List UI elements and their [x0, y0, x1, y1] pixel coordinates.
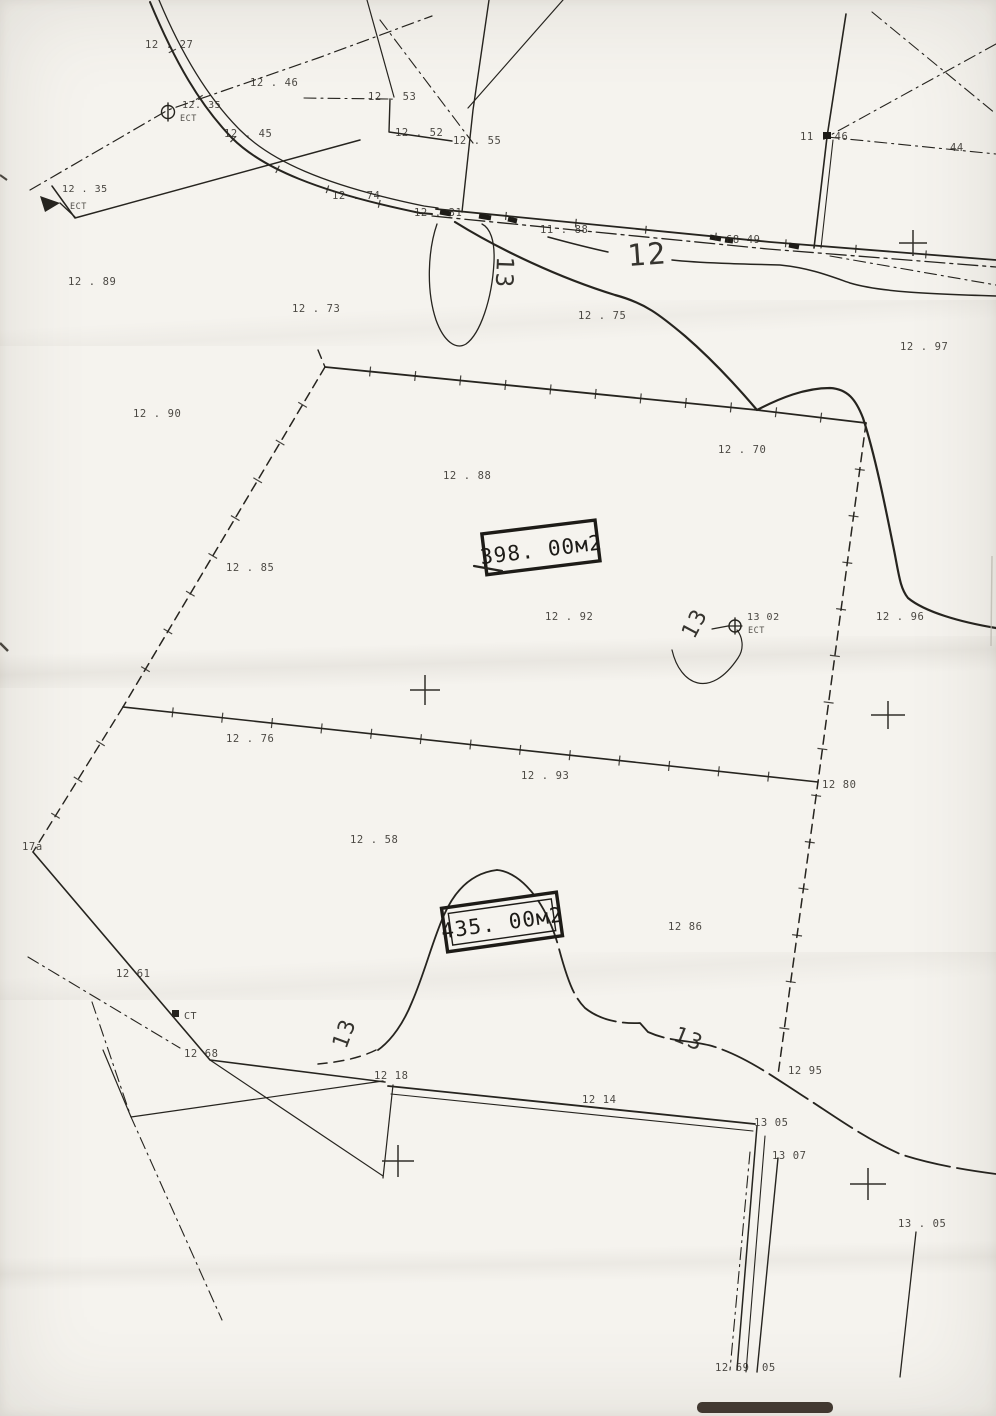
- survey-tick: [222, 713, 223, 723]
- contour-13-lower: [497, 870, 996, 1174]
- survey-tick: [811, 795, 821, 796]
- contour-label: 13: [490, 256, 519, 290]
- contour-13-left-tail: [318, 1050, 376, 1064]
- survey-tick: [779, 1028, 789, 1029]
- survey-tick: [186, 591, 195, 596]
- survey-tick: [817, 748, 827, 749]
- elevation-label: 12 . 75: [578, 310, 626, 322]
- survey-tick: [164, 629, 173, 634]
- survey-tick: [805, 842, 815, 843]
- survey-tick: [836, 609, 846, 610]
- survey-tick: [640, 393, 641, 403]
- survey-tick: [271, 718, 272, 728]
- plot-line-a: [468, 0, 563, 108]
- survey-dash-a: [28, 957, 180, 1048]
- elevation-label: 12 . 70: [718, 444, 766, 456]
- plot-line-b: [367, 0, 394, 97]
- sight-line-2: [827, 44, 996, 137]
- survey-tick: [842, 562, 852, 563]
- survey-tick: [926, 250, 927, 258]
- survey-line-through-station: [30, 16, 432, 190]
- survey-tick: [775, 407, 776, 417]
- survey-tick: [595, 389, 596, 399]
- elevation-label: 12 . 46: [250, 77, 298, 89]
- elevation-label: 12 . 58: [350, 834, 398, 846]
- corner-vertical-stub: [383, 1085, 393, 1178]
- contour-12-line: [548, 237, 996, 296]
- elevation-label: 12 . 27: [145, 39, 193, 51]
- station-label: СТ: [184, 1011, 197, 1022]
- left-vee-line: [52, 140, 360, 218]
- street-vertical-a: [737, 1126, 757, 1370]
- contour-label: 13: [670, 1022, 708, 1057]
- survey-tick: [253, 478, 262, 483]
- elevation-label: 12 86: [668, 921, 703, 933]
- station-sublabel: ЕСТ: [180, 114, 197, 124]
- contour-label: 13: [677, 604, 713, 643]
- survey-tick: [231, 516, 240, 521]
- survey-tick: [208, 553, 217, 558]
- elevation-label: 12 . 93: [521, 770, 569, 782]
- elevation-label: 12 . 76: [226, 733, 274, 745]
- station-loop-curve: [672, 630, 742, 684]
- elevation-label: 12 . 53: [368, 91, 416, 103]
- survey-tick: [824, 702, 834, 703]
- survey-tick: [855, 469, 865, 470]
- contour-label: 12: [626, 236, 668, 274]
- survey-tick: [669, 761, 670, 771]
- contour-label: 13: [328, 1015, 362, 1052]
- elevation-label: 12 . 85: [226, 562, 274, 574]
- scanned-survey-map-page: 12. 35 ЕСТ 12 . 35 ЕСТ 13 02 ЕСТ СТ 398.…: [0, 0, 996, 1416]
- survey-tick: [460, 375, 461, 385]
- elevation-label: 12 80: [822, 779, 857, 791]
- elevation-label: 12 . 92: [545, 611, 593, 623]
- contour-labels: 1213131313: [328, 236, 713, 1057]
- crossing-lines-bottom-left: [28, 957, 393, 1320]
- grid-cross: [871, 701, 905, 729]
- survey-tick: [768, 772, 769, 782]
- contour-lines: [318, 222, 996, 1174]
- survey-tick: [520, 745, 521, 755]
- elevation-label: 12 . 97: [900, 341, 948, 353]
- elevation-label: 12 . 45: [224, 128, 272, 140]
- survey-tick: [685, 398, 686, 408]
- elevation-label: 12 69: [715, 1362, 750, 1374]
- survey-tick: [370, 367, 371, 377]
- elevation-label: 12 . 96: [876, 611, 924, 623]
- street-line-lower: [391, 1094, 753, 1131]
- survey-tick: [505, 380, 506, 390]
- area-box-398: 398. 00м2: [477, 520, 604, 576]
- elevation-label: 68 49: [726, 234, 761, 246]
- elevation-label: 12 . 31: [414, 207, 462, 219]
- contour-13-blob: [429, 224, 494, 346]
- corner-stub-dash: [318, 350, 325, 367]
- sight-line-1: [872, 12, 996, 114]
- survey-tick-marks: [51, 49, 926, 1029]
- elevation-label: 12 . 55: [453, 135, 501, 147]
- station-label: 12 . 35: [62, 184, 108, 195]
- station-square-icon: [172, 1010, 179, 1017]
- survey-tick: [141, 667, 150, 672]
- elevation-label: 13 . 05: [898, 1218, 946, 1230]
- survey-tick: [321, 723, 322, 733]
- station-arrow-icon: [40, 196, 60, 212]
- elevation-label: 12 . 73: [292, 303, 340, 315]
- survey-tick: [645, 226, 646, 234]
- survey-tick: [298, 402, 307, 407]
- map-drawing: 12. 35 ЕСТ 12 . 35 ЕСТ 13 02 ЕСТ СТ 398.…: [0, 0, 996, 1416]
- right-edge-line: [991, 556, 992, 646]
- line-bottom-right: [900, 1232, 916, 1377]
- survey-tick: [470, 740, 471, 750]
- survey-tick: [798, 888, 808, 889]
- elevation-label: 11 . 88: [540, 224, 588, 236]
- survey-tick: [730, 402, 731, 412]
- crossing-line-b: [210, 1060, 383, 1176]
- area-box-435: 435. 00м2: [438, 892, 566, 953]
- station-label: 12. 35: [182, 100, 221, 111]
- survey-tick: [619, 756, 620, 766]
- station-top-left: 12. 35 ЕСТ: [162, 100, 222, 124]
- elevation-label: 12 . 89: [68, 276, 116, 288]
- contour-13-lower-left: [378, 870, 497, 1050]
- elevation-label: 12 14: [582, 1094, 617, 1106]
- elevation-label: 13 05: [754, 1117, 789, 1129]
- grid-cross: [382, 1145, 414, 1177]
- road-shoulder-dash: [830, 256, 996, 285]
- street-line-upper: [388, 1086, 755, 1124]
- survey-tick: [785, 239, 786, 247]
- elevation-label: 12 61: [116, 968, 151, 980]
- survey-tick: [276, 440, 285, 445]
- sight-line-3: [827, 137, 996, 154]
- survey-lines-top-right: [814, 12, 996, 248]
- elevation-label: 44: [950, 142, 964, 154]
- survey-tick: [820, 413, 821, 423]
- elevation-label: 12 . 52: [395, 127, 443, 139]
- survey-lines-top-left: [30, 0, 563, 218]
- survey-tick: [415, 371, 416, 381]
- elevation-label: 12 . 88: [443, 470, 491, 482]
- survey-tick: [786, 981, 796, 982]
- survey-tick: [371, 729, 372, 739]
- elevation-label: 12 68: [184, 1048, 219, 1060]
- scan-artifacts: [0, 175, 992, 1413]
- grid-crosses: [382, 230, 927, 1200]
- elevation-label: 17а: [22, 841, 43, 853]
- elevation-label: 12 . 74: [332, 190, 380, 202]
- left-edge-mark: [0, 643, 8, 651]
- grid-cross: [850, 1168, 886, 1200]
- survey-tick: [550, 384, 551, 394]
- survey-tick: [856, 245, 857, 253]
- survey-tick: [172, 707, 173, 717]
- survey-tick: [718, 766, 719, 776]
- survey-tick: [74, 777, 82, 782]
- street-vertical-b: [746, 1136, 765, 1372]
- survey-tick: [849, 515, 859, 516]
- survey-tick: [506, 212, 507, 220]
- stair-diagonal: [380, 20, 473, 143]
- elevation-label: 11 . 46: [800, 131, 848, 143]
- left-edge-mark: [0, 175, 7, 180]
- survey-tick: [96, 741, 104, 746]
- pole-line-right-double: [821, 140, 833, 248]
- survey-tick: [715, 233, 716, 241]
- station-sublabel: ЕСТ: [70, 202, 87, 212]
- elevation-label: 13 07: [772, 1150, 807, 1162]
- station-label: 13 02: [747, 612, 780, 623]
- station-sublabel: ЕСТ: [748, 626, 765, 636]
- survey-tick: [420, 734, 421, 744]
- fence-vertical-line: [462, 0, 489, 212]
- elevation-label: 05: [762, 1362, 776, 1374]
- scan-dark-bar: [697, 1402, 833, 1413]
- street-bottom: [388, 1086, 916, 1377]
- elevation-label: 12 . 90: [133, 408, 181, 420]
- road: [150, 0, 996, 285]
- survey-tick: [830, 655, 840, 656]
- elevation-label: 12 18: [374, 1070, 409, 1082]
- survey-tick: [792, 935, 802, 936]
- parcel-boundaries: [33, 350, 866, 1082]
- crossing-line-a: [103, 1050, 383, 1117]
- station-tie-line: [712, 626, 728, 629]
- elevation-label: 12 95: [788, 1065, 823, 1077]
- survey-tick: [569, 750, 570, 760]
- survey-tick: [51, 813, 59, 818]
- grid-cross: [410, 675, 440, 705]
